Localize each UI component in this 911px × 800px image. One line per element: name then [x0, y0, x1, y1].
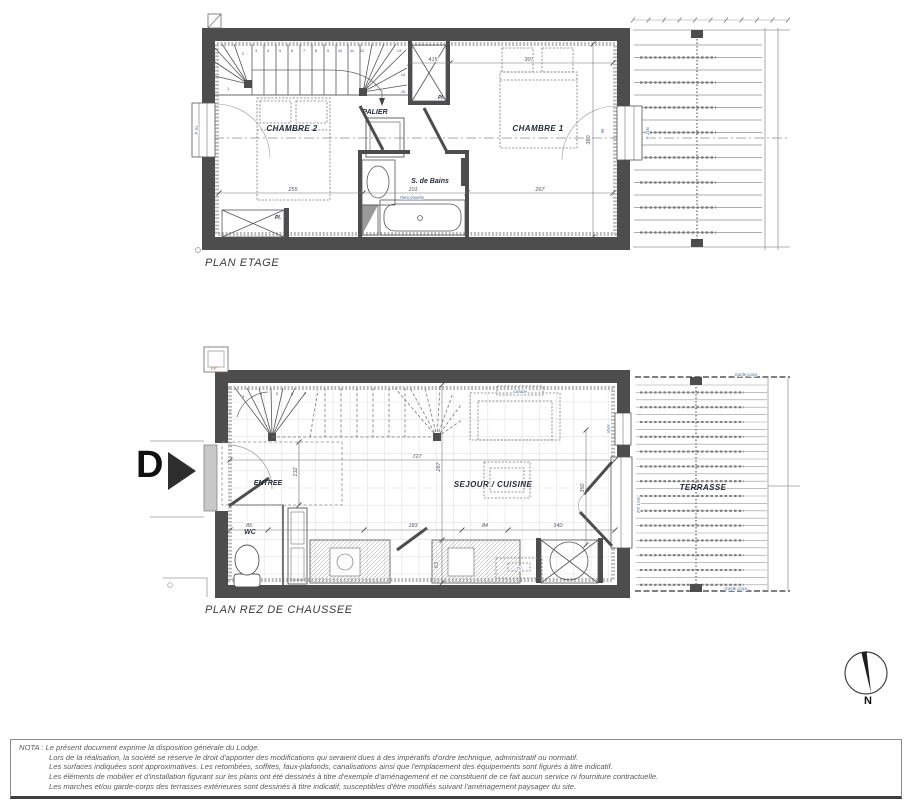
entrance-arrow-icon — [168, 452, 196, 490]
nota-line: NOTA : Le présent document exprime la di… — [19, 743, 895, 753]
nota-line: Les marches et/ou garde-corps des terras… — [19, 782, 895, 792]
dim-255: 255 — [287, 187, 298, 193]
nota-line: Les éléments de mobilier et d'installati… — [19, 772, 895, 782]
pare-douche-label: Pare douche — [400, 195, 424, 200]
nota-box: NOTA : Le présent document exprime la di… — [10, 739, 902, 799]
dim-350: 350 — [580, 482, 586, 492]
upper-balcony-decking — [634, 45, 762, 233]
dim-380: 380 — [586, 134, 592, 144]
entrance-door-slab — [204, 445, 217, 511]
sofa-label: canapé — [513, 389, 527, 394]
stair-number: 7 — [304, 392, 306, 396]
terrace-post — [690, 377, 702, 385]
window-left-frame — [192, 103, 270, 158]
dim-101: 101 — [408, 187, 417, 193]
window-label: F. 2vtx — [645, 126, 650, 139]
kitchen-counter — [310, 540, 520, 583]
sofa — [470, 386, 560, 440]
stair-number: 10 — [338, 49, 342, 53]
stair-number: 15 — [401, 90, 405, 94]
door-leaf — [424, 108, 447, 152]
ff-label: F.F — [211, 366, 217, 371]
room-label-chambre-2: CHAMBRE 2 — [266, 124, 317, 133]
stair-number: 8 — [315, 49, 317, 53]
room-label-chambre-1: CHAMBRE 1 — [512, 124, 563, 133]
compass-needle-icon — [862, 651, 872, 693]
ground-plan-title: PLAN REZ DE CHAUSSEE — [205, 604, 353, 616]
nota-lines: NOTA : Le présent document exprime la di… — [19, 743, 895, 792]
stair-number: 2 — [229, 411, 231, 415]
closet-label: Pl. — [275, 215, 281, 221]
stair-number: 14 — [401, 73, 405, 77]
garde-corps-label: Garde corps — [724, 586, 748, 591]
survey-mark — [168, 583, 173, 588]
bed-chambre2 — [257, 98, 330, 200]
dim-132: 132 — [293, 467, 299, 476]
garde-corps-label: Garde corps — [734, 372, 758, 377]
stair-number: 3 — [255, 49, 257, 53]
dim-340: 340 — [553, 523, 563, 529]
balcony-post — [691, 239, 703, 247]
dim-84: 84 — [482, 523, 488, 529]
water-heater — [536, 538, 603, 583]
cupboard — [288, 508, 307, 584]
floor-plan-sheet: F. Av F. 2vtx 96 123456789101112131415 P… — [0, 0, 911, 800]
stair-number: 13 — [397, 49, 401, 53]
toilet — [234, 545, 260, 587]
window-label: VtxH — [606, 423, 611, 433]
stair-number: 2 — [242, 52, 244, 56]
window-vtxh-frame — [615, 413, 631, 445]
ground-stairs — [235, 388, 462, 441]
nota-line: Les surfaces indiquées sont approximativ… — [19, 762, 895, 772]
dim-96: 96 — [600, 128, 605, 133]
dim-307: 307 — [524, 57, 534, 63]
room-label-sejour-cuisine: SEJOUR / CUISINE — [454, 480, 533, 489]
stair-number: 6 — [291, 392, 293, 396]
stair-number: 6 — [291, 49, 293, 53]
stair-number: 5 — [279, 49, 281, 53]
dim-267: 267 — [534, 187, 545, 193]
upper-floor-plan: F. Av F. 2vtx 96 123456789101112131415 P… — [192, 14, 790, 269]
closet-label: Pl. — [438, 95, 444, 101]
dim-415: 415 — [428, 57, 438, 63]
balcony-dimension-line — [631, 18, 790, 23]
dim-287: 287 — [436, 461, 442, 472]
stair-number: 9 — [327, 49, 329, 53]
stair-number: 11 — [350, 49, 354, 53]
stair-number: 5 — [276, 392, 278, 396]
compass-north-label: N — [864, 695, 872, 707]
tv-label: TV — [516, 566, 523, 571]
compass: N — [845, 651, 887, 707]
stair-number: 12 — [360, 49, 364, 53]
balcony-post — [691, 30, 703, 38]
dim-727: 727 — [412, 454, 422, 460]
upper-plan-title: PLAN ETAGE — [205, 257, 279, 269]
room-label-entree: ENTREE — [254, 480, 283, 487]
dim-183: 183 — [408, 523, 418, 529]
stair-number: 1 — [228, 429, 230, 433]
stair-void-outline — [222, 442, 342, 505]
stair-number: 1 — [227, 87, 229, 91]
dim-85: 85 — [246, 523, 253, 529]
ground-floor-plan: Garde corps Garde corps TERRASSE F.F D — [136, 347, 800, 616]
stair-number: 4 — [260, 392, 262, 396]
window-label: F. Av — [194, 125, 199, 135]
entrance-marker-letter: D — [136, 444, 163, 486]
nota-line: Lors de la réalisation, la société se ré… — [19, 753, 895, 763]
stair-number: 7 — [303, 49, 305, 53]
ground-dimensions: 727 287 132 85 183 84 340 350 63 — [228, 383, 618, 586]
stair-number: 4 — [267, 49, 269, 53]
terrace-post — [690, 584, 702, 592]
dim-63: 63 — [434, 561, 440, 568]
room-label-terrasse: TERRASSE — [680, 483, 727, 492]
survey-mark — [196, 248, 201, 253]
room-label-sdb: S. de Bains — [411, 178, 449, 185]
plans-drawing: F. Av F. 2vtx 96 123456789101112131415 P… — [0, 0, 911, 735]
stair-number: 3 — [242, 395, 244, 399]
insulation-band — [217, 44, 615, 234]
door-label: P.F 1Vtx — [636, 496, 641, 512]
